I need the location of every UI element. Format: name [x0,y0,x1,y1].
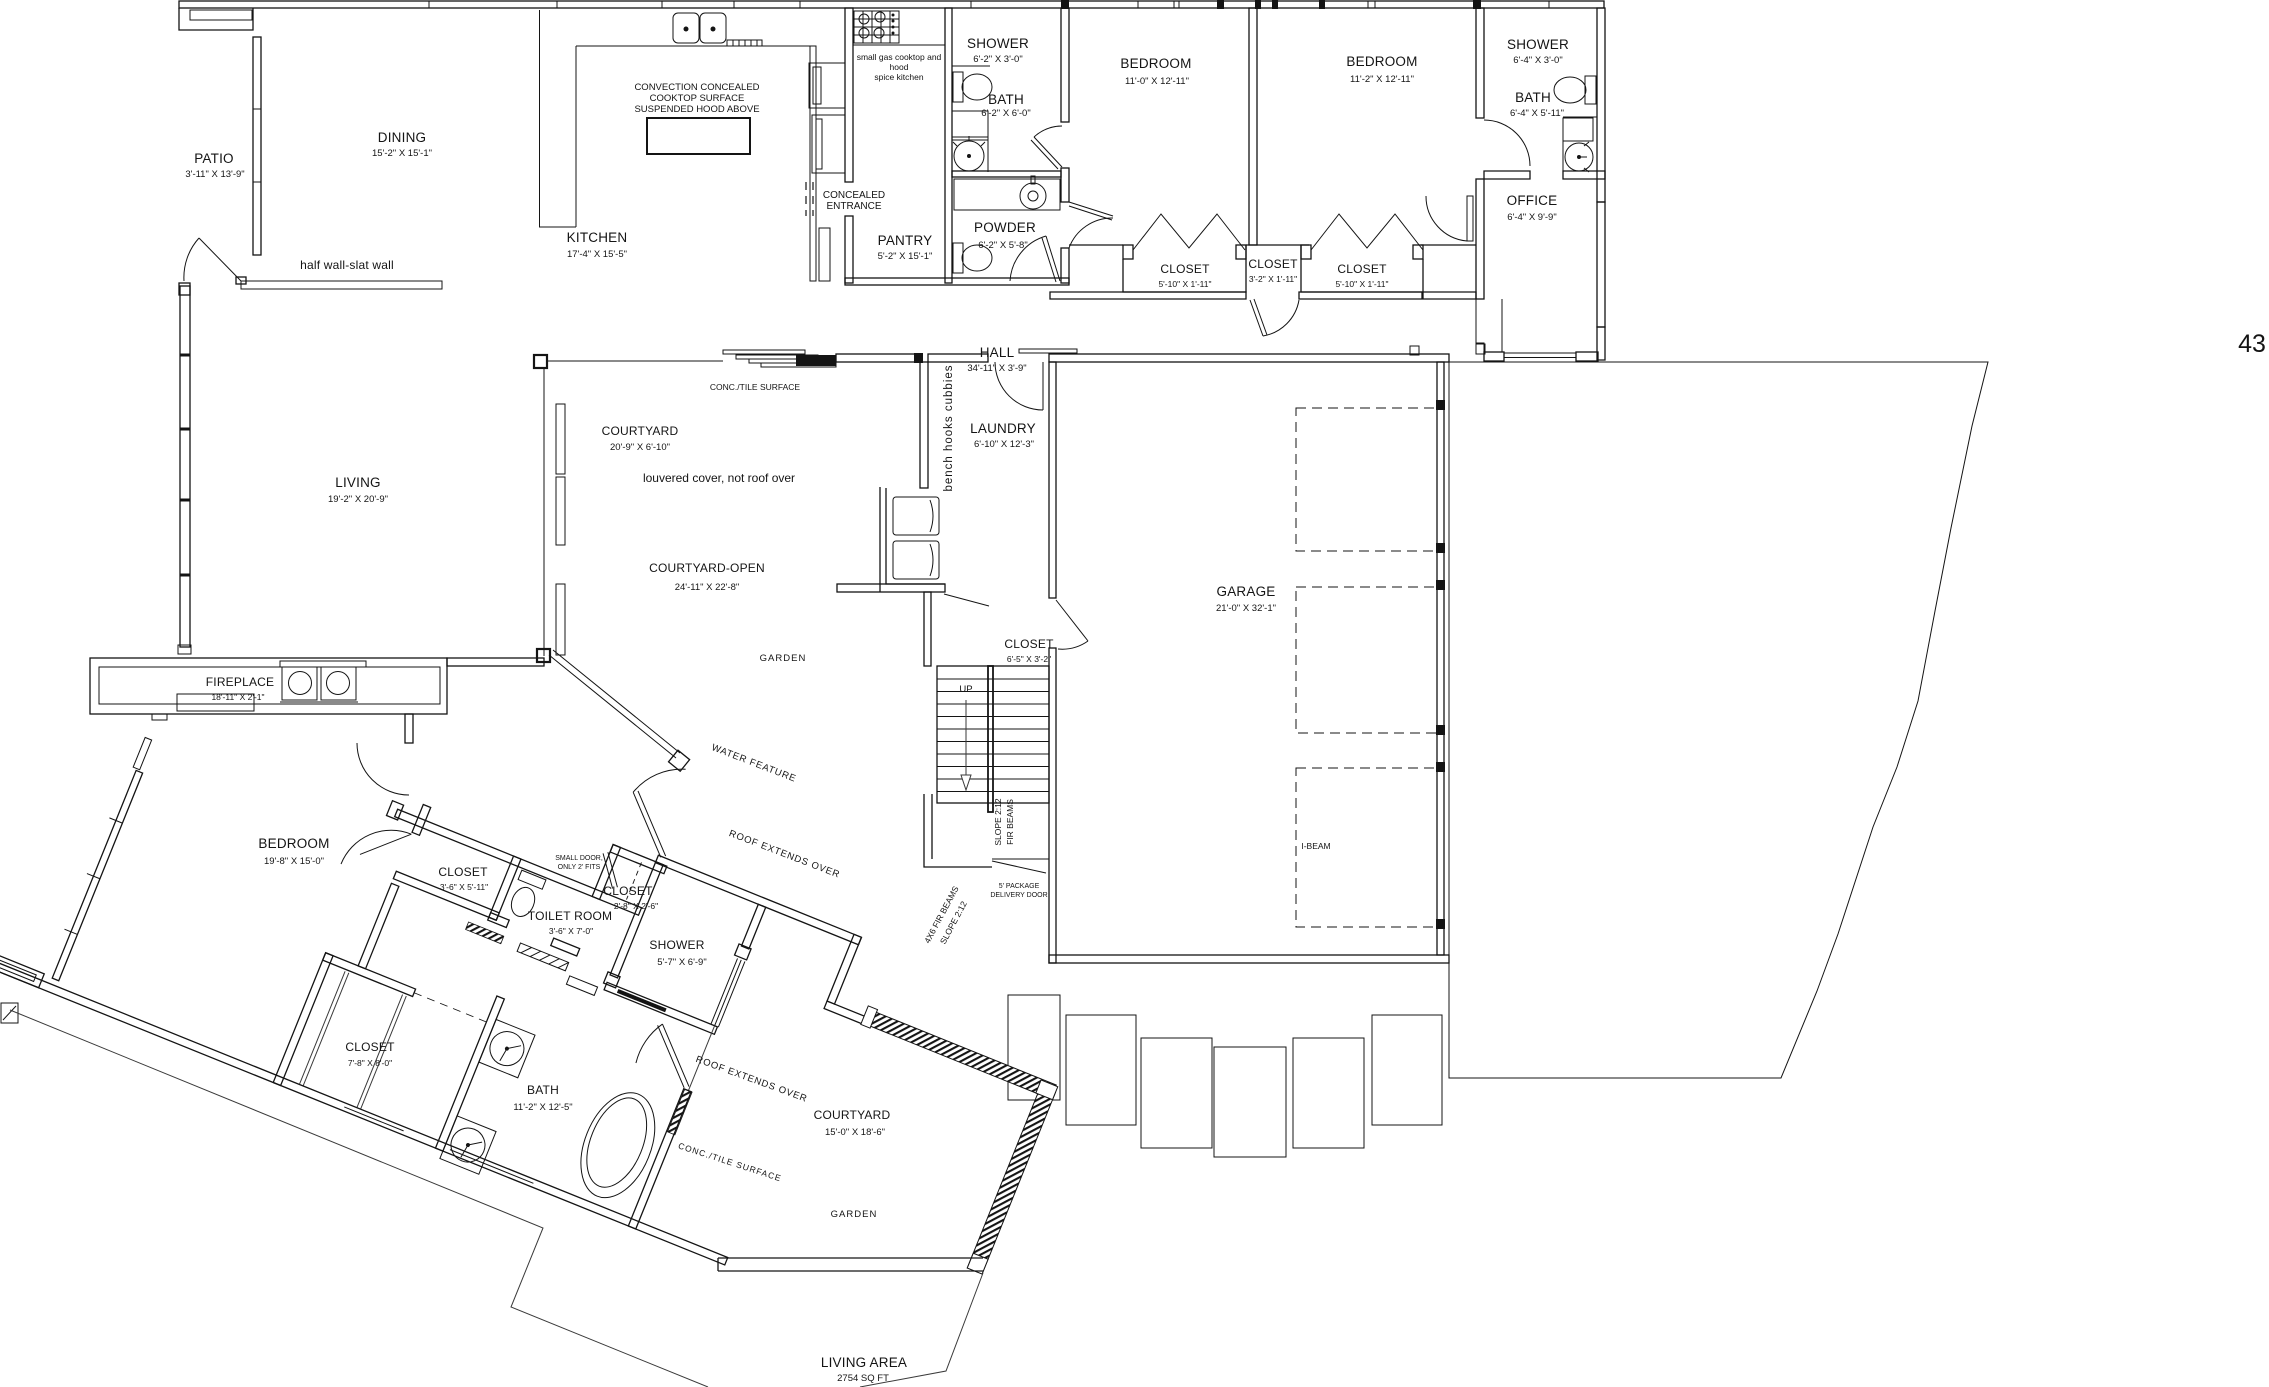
svg-text:CLOSET: CLOSET [438,865,488,879]
svg-text:5'-10" X 1'-11": 5'-10" X 1'-11" [1335,279,1388,289]
svg-text:BATH: BATH [1515,90,1551,105]
svg-text:DELIVERY DOOR: DELIVERY DOOR [990,892,1047,899]
svg-text:17'-4" X 15'-5": 17'-4" X 15'-5" [567,249,627,260]
svg-text:DINING: DINING [378,130,426,145]
svg-text:CONCEALED: CONCEALED [823,190,885,201]
svg-text:GARAGE: GARAGE [1217,584,1276,599]
svg-text:CLOSET: CLOSET [1337,262,1387,276]
svg-text:19'-8" X 15'-0": 19'-8" X 15'-0" [264,856,324,867]
svg-text:PANTRY: PANTRY [878,233,933,248]
svg-text:ENTRANCE: ENTRANCE [826,201,881,212]
svg-text:BEDROOM: BEDROOM [258,836,329,851]
svg-text:FIR BEAMS: FIR BEAMS [1005,799,1015,845]
svg-text:COURTYARD: COURTYARD [602,424,679,438]
svg-text:6'-4" X 5'-11": 6'-4" X 5'-11" [1510,108,1564,119]
svg-text:ONLY 2' FITS: ONLY 2' FITS [558,864,601,871]
svg-text:6'-4" X 3'-0": 6'-4" X 3'-0" [1513,55,1562,66]
svg-text:OFFICE: OFFICE [1507,193,1558,208]
svg-text:20'-9" X 6'-10": 20'-9" X 6'-10" [610,442,670,453]
svg-text:6'-4" X 9'-9": 6'-4" X 9'-9" [1507,212,1556,223]
svg-text:5'-7" X 6'-9": 5'-7" X 6'-9" [657,957,706,968]
svg-text:UP: UP [959,684,972,695]
svg-text:6'-2" X 3'-0": 6'-2" X 3'-0" [973,54,1022,65]
svg-text:3'-2" X 1'-11": 3'-2" X 1'-11" [1249,274,1297,284]
svg-text:GARDEN: GARDEN [831,1209,878,1220]
svg-text:SLOPE 2:12: SLOPE 2:12 [993,798,1003,846]
svg-text:POWDER: POWDER [974,220,1036,235]
svg-text:5' PACKAGE: 5' PACKAGE [999,883,1040,890]
svg-text:CLOSET: CLOSET [1004,637,1054,651]
svg-text:CLOSET: CLOSET [1160,262,1210,276]
svg-text:CONVECTION CONCEALED: CONVECTION CONCEALED [634,82,759,93]
svg-text:5'-10" X 1'-11": 5'-10" X 1'-11" [1158,279,1211,289]
svg-text:PATIO: PATIO [194,151,234,166]
svg-text:BEDROOM: BEDROOM [1346,54,1417,69]
svg-text:19'-2" X 20'-9": 19'-2" X 20'-9" [328,494,388,505]
svg-text:louvered cover, not roof over: louvered cover, not roof over [643,471,795,485]
svg-text:HALL: HALL [980,345,1015,360]
svg-text:SHOWER: SHOWER [649,938,704,952]
svg-text:15'-2" X 15'-1": 15'-2" X 15'-1" [372,148,432,159]
svg-text:5'-2" X 15'-1": 5'-2" X 15'-1" [878,251,933,262]
svg-text:6'-2" X 5'-8": 6'-2" X 5'-8" [978,240,1027,251]
svg-text:I-BEAM: I-BEAM [1301,841,1330,851]
svg-text:6'-2" X 6'-0": 6'-2" X 6'-0" [981,108,1030,119]
svg-text:small gas cooktop and: small gas cooktop and [857,52,942,62]
svg-text:34'-11" X 3'-9": 34'-11" X 3'-9" [967,363,1026,374]
svg-text:SMALL DOOR,: SMALL DOOR, [555,855,603,862]
svg-text:43: 43 [2238,330,2266,358]
svg-text:SHOWER: SHOWER [967,36,1029,51]
svg-text:CLOSET: CLOSET [603,884,653,898]
svg-text:11'-0" X 12'-11": 11'-0" X 12'-11" [1125,76,1189,87]
svg-text:3'-6" X 7'-0": 3'-6" X 7'-0" [549,926,593,936]
svg-text:6'-10" X 12'-3": 6'-10" X 12'-3" [974,439,1034,450]
svg-text:GARDEN: GARDEN [760,653,807,664]
svg-text:BATH: BATH [988,92,1024,107]
svg-text:7'-8" X 8'-0": 7'-8" X 8'-0" [348,1058,392,1068]
svg-text:CLOSET: CLOSET [345,1040,395,1054]
svg-text:COURTYARD: COURTYARD [814,1108,891,1122]
svg-text:LIVING AREA: LIVING AREA [821,1355,907,1370]
svg-text:2'-8" X 2'-6": 2'-8" X 2'-6" [614,901,658,911]
svg-text:6'-5" X 3'-2": 6'-5" X 3'-2" [1007,654,1051,664]
svg-text:COURTYARD-OPEN: COURTYARD-OPEN [649,561,765,575]
svg-text:BATH: BATH [527,1083,559,1097]
svg-text:hood: hood [890,62,909,72]
svg-text:11'-2" X 12'-11": 11'-2" X 12'-11" [1350,74,1414,85]
svg-text:half wall-slat wall: half wall-slat wall [300,258,394,272]
svg-text:bench hooks cubbies: bench hooks cubbies [943,364,955,491]
svg-text:21'-0" X 32'-1": 21'-0" X 32'-1" [1216,603,1276,614]
svg-text:FIREPLACE: FIREPLACE [206,675,275,689]
svg-text:TOILET ROOM: TOILET ROOM [528,909,612,923]
svg-text:BEDROOM: BEDROOM [1120,56,1191,71]
svg-text:LIVING: LIVING [335,475,380,490]
svg-text:CONC./TILE SURFACE: CONC./TILE SURFACE [710,382,801,392]
svg-text:KITCHEN: KITCHEN [567,230,628,245]
svg-text:spice kitchen: spice kitchen [874,72,923,82]
svg-text:15'-0" X 18'-6": 15'-0" X 18'-6" [825,1127,885,1138]
svg-text:CLOSET: CLOSET [1248,257,1298,271]
svg-text:3'-6" X 5'-11": 3'-6" X 5'-11" [440,882,488,892]
svg-text:2754 SQ FT: 2754 SQ FT [837,1373,889,1384]
svg-text:11'-2" X 12'-5": 11'-2" X 12'-5" [513,1102,572,1113]
svg-text:COOKTOP SURFACE: COOKTOP SURFACE [650,93,745,104]
svg-text:SHOWER: SHOWER [1507,37,1569,52]
svg-text:LAUNDRY: LAUNDRY [970,421,1036,436]
svg-text:24'-11" X 22'-8": 24'-11" X 22'-8" [675,582,740,593]
svg-text:SUSPENDED HOOD ABOVE: SUSPENDED HOOD ABOVE [634,104,759,115]
svg-text:3'-11" X 13'-9": 3'-11" X 13'-9" [185,169,244,180]
